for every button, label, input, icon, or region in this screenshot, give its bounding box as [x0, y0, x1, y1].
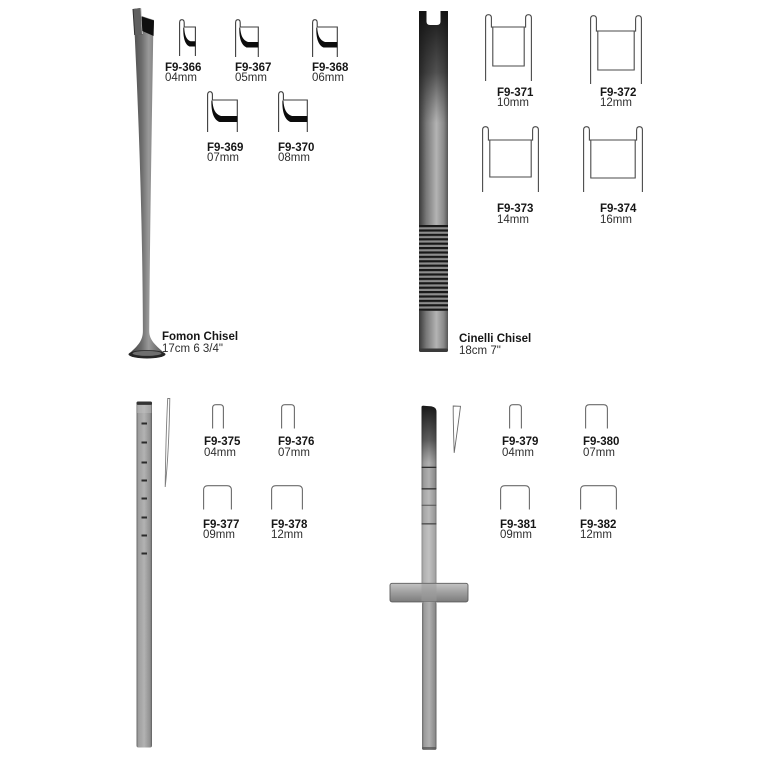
product-size: 09mm [203, 530, 239, 541]
tip-width-diagram-f9-367 [235, 19, 259, 58]
product-label: F9-372 12mm [600, 88, 636, 110]
product-size: 06mm [312, 73, 348, 84]
product-label: F9-381 09mm [500, 520, 536, 542]
product-size: 07mm [278, 448, 314, 459]
product-size: 04mm [502, 448, 538, 459]
side-profile-sketch [453, 406, 460, 453]
tip-width-diagram-f9-378 [271, 485, 303, 510]
product-label: F9-377 09mm [203, 520, 239, 542]
product-label: F9-369 07mm [207, 143, 243, 165]
tip-width-diagram-f9-375 [212, 404, 224, 429]
graduated-osteotome-illustration [125, 390, 185, 764]
tip-width-diagram-f9-370 [278, 91, 308, 133]
cross-handle-osteotome-illustration [385, 395, 470, 760]
instrument-dimensions: 18cm 7" [459, 346, 531, 358]
tip-width-diagram-f9-380 [585, 404, 608, 429]
instrument-header-cinelli: Cinelli Chisel 18cm 7" [459, 334, 531, 357]
instrument-dimensions: 17cm 6 3/4" [162, 344, 238, 356]
product-label: F9-370 08mm [278, 143, 314, 165]
product-size: 14mm [497, 215, 533, 226]
instrument-name: Cinelli Chisel [459, 333, 531, 345]
instrument-name: Fomon Chisel [162, 331, 238, 343]
tip-width-diagram-f9-368 [312, 19, 338, 58]
catalog-page: F9-366 04mm F9-367 05mm F9-368 06mm F9-3… [0, 0, 763, 764]
product-size: 05mm [235, 73, 271, 84]
product-label: F9-376 07mm [278, 437, 314, 459]
tip-width-diagram-f9-377 [203, 485, 232, 510]
product-size: 08mm [278, 153, 314, 164]
side-profile-sketch [165, 399, 170, 488]
tip-width-diagram-f9-374 [583, 126, 643, 193]
tip-width-diagram-f9-369 [207, 91, 238, 133]
product-label: F9-371 10mm [497, 88, 533, 110]
product-size: 12mm [580, 530, 616, 541]
product-label: F9-382 12mm [580, 520, 616, 542]
tip-width-diagram-f9-371 [485, 14, 532, 82]
product-size: 10mm [497, 98, 533, 109]
tip-width-diagram-f9-373 [482, 126, 539, 193]
product-size: 12mm [271, 530, 307, 541]
product-size: 16mm [600, 215, 636, 226]
product-label: F9-378 12mm [271, 520, 307, 542]
product-size: 07mm [207, 153, 243, 164]
product-size: 09mm [500, 530, 536, 541]
tip-width-diagram-f9-381 [500, 485, 530, 510]
product-size: 04mm [204, 448, 240, 459]
product-size: 07mm [583, 448, 619, 459]
tip-width-diagram-f9-372 [590, 15, 642, 85]
cinelli-chisel-illustration [412, 5, 457, 355]
product-label: F9-366 04mm [165, 63, 201, 85]
tip-width-diagram-f9-366 [179, 19, 196, 57]
product-label: F9-373 14mm [497, 204, 533, 226]
product-label: F9-367 05mm [235, 63, 271, 85]
product-label: F9-368 06mm [312, 63, 348, 85]
product-label: F9-374 16mm [600, 204, 636, 226]
product-label: F9-375 04mm [204, 437, 240, 459]
tip-width-diagram-f9-382 [580, 485, 617, 510]
product-label: F9-380 07mm [583, 437, 619, 459]
fomon-chisel-illustration [120, 5, 180, 361]
product-size: 04mm [165, 73, 201, 84]
product-size: 12mm [600, 98, 636, 109]
tip-width-diagram-f9-379 [509, 404, 522, 429]
tip-width-diagram-f9-376 [281, 404, 295, 429]
product-label: F9-379 04mm [502, 437, 538, 459]
instrument-header-fomon: Fomon Chisel 17cm 6 3/4" [162, 332, 238, 355]
